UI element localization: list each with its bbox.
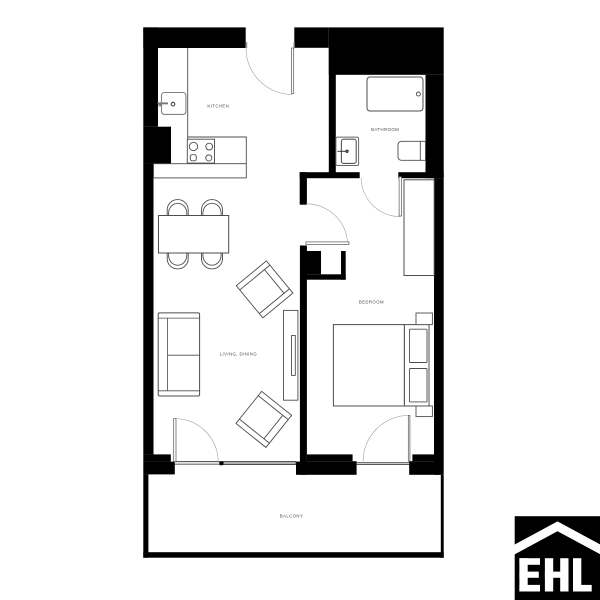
svg-text:BATHROOM: BATHROOM [371, 127, 399, 132]
svg-text:KITCHEN: KITCHEN [207, 103, 229, 108]
svg-text:LIVING, DINING: LIVING, DINING [220, 351, 258, 356]
svg-text:BEDROOM: BEDROOM [359, 299, 384, 304]
svg-text:BALCONY: BALCONY [280, 513, 303, 518]
